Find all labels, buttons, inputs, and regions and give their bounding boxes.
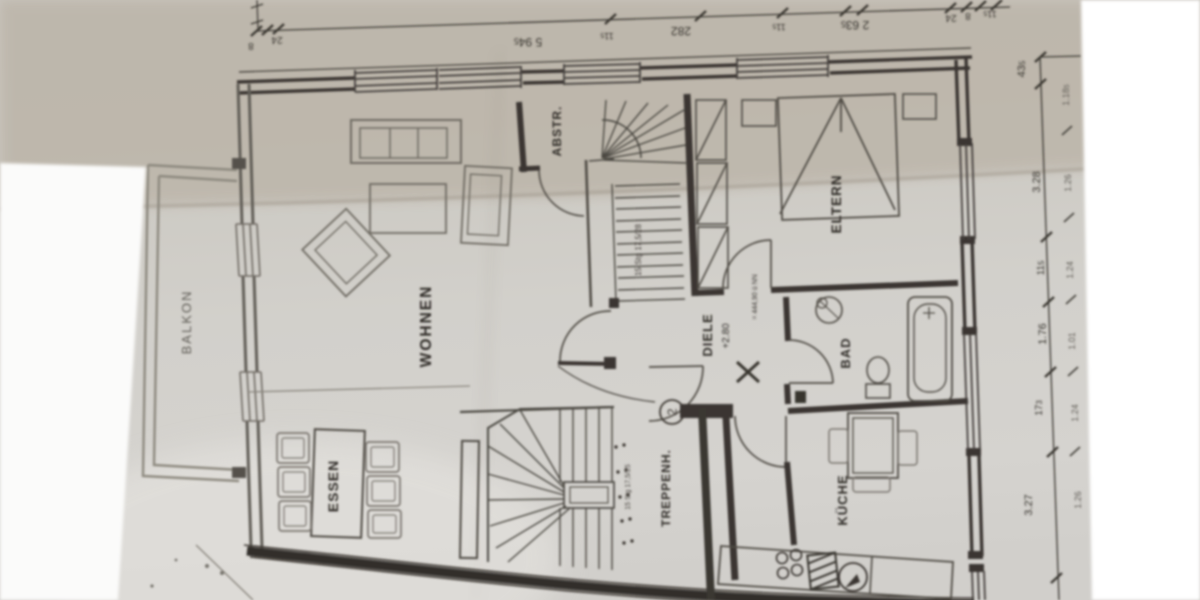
svg-text:+2.80: +2.80: [721, 323, 732, 349]
svg-text:24: 24: [945, 12, 957, 23]
svg-text:282: 282: [671, 24, 691, 38]
svg-text:1.26: 1.26: [1073, 491, 1083, 509]
svg-text:BAD: BAD: [838, 337, 853, 368]
svg-text:ELTERN: ELTERN: [829, 175, 844, 234]
svg-text:= 444,90 ü NN: = 444,90 ü NN: [752, 274, 759, 319]
svg-text:8: 8: [965, 10, 971, 21]
svg-text:3.28: 3.28: [1031, 171, 1043, 192]
svg-text:BALKON: BALKON: [179, 290, 194, 355]
svg-text:1.26: 1.26: [1063, 174, 1073, 192]
svg-text:1.24: 1.24: [1065, 261, 1075, 279]
svg-text:24: 24: [271, 34, 283, 45]
svg-text:DIELE: DIELE: [700, 313, 715, 356]
svg-text:2 635: 2 635: [841, 18, 869, 32]
svg-text:2: 2: [665, 408, 680, 415]
svg-text:5 945: 5 945: [514, 35, 542, 49]
svg-text:KÜCHE: KÜCHE: [835, 474, 850, 525]
svg-text:3.27: 3.27: [1023, 494, 1035, 515]
svg-text:15 Stg 17,5/28: 15 Stg 17,5/28: [634, 223, 643, 276]
svg-text:15 Stg 17,5/25: 15 Stg 17,5/25: [625, 464, 632, 510]
svg-text:115: 115: [1036, 260, 1047, 275]
svg-text:1.76: 1.76: [1037, 323, 1049, 344]
svg-text:1.01: 1.01: [1067, 332, 1077, 350]
svg-text:173: 173: [1034, 400, 1045, 416]
svg-text:WOHNEN: WOHNEN: [418, 285, 435, 368]
svg-text:1.24: 1.24: [1070, 404, 1080, 422]
svg-text:435: 435: [1016, 60, 1028, 77]
svg-text:ABSTR.: ABSTR.: [550, 106, 564, 157]
svg-text:ESSEN: ESSEN: [325, 460, 341, 512]
svg-text:TREPPENH.: TREPPENH.: [659, 449, 673, 527]
svg-text:8: 8: [248, 40, 254, 51]
